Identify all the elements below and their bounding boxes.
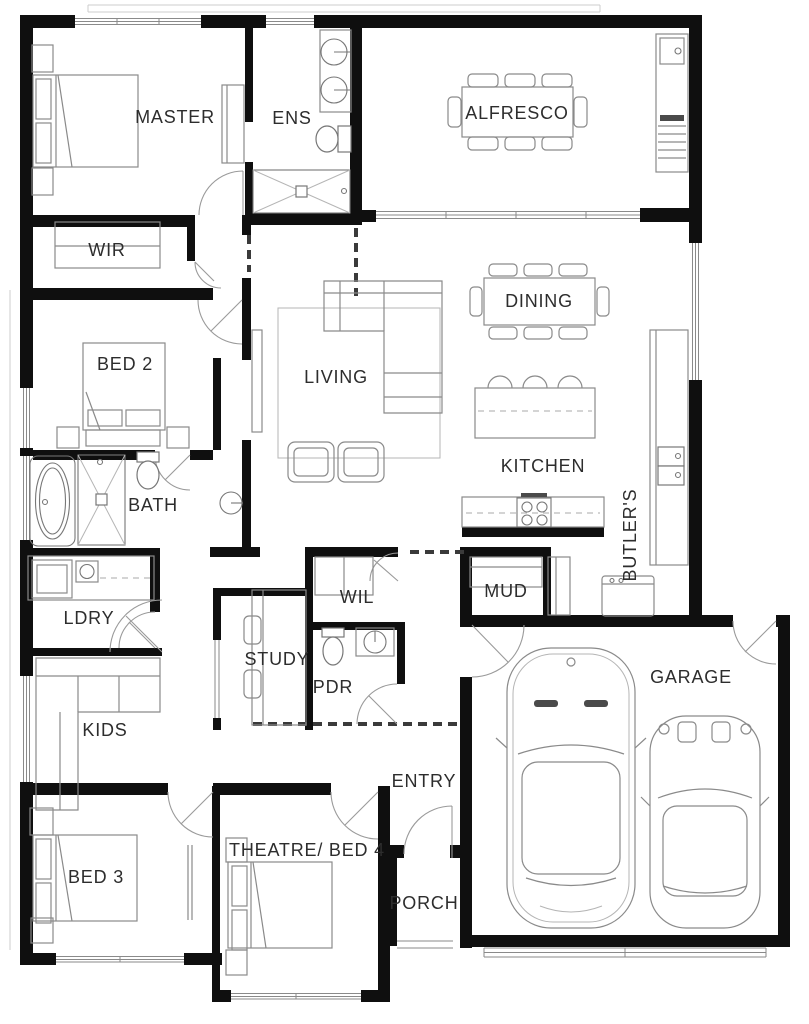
window-theatre-bottom [231,990,361,1002]
room-label-living: LIVING [304,367,368,387]
sliding-door-alfresco [376,208,640,222]
window-kitchen-right [689,243,702,380]
master-robe [222,85,244,163]
living-sofa [324,281,442,413]
ens-toilet [316,126,351,152]
room-label-theatre: THEATRE/ BED 4 [229,840,385,860]
kitchen-bench [462,493,604,527]
door-garage-internal [472,625,524,677]
room-label-wir: WIR [88,240,125,260]
master-bed [32,45,138,195]
garage-door [484,948,766,957]
bath-shower [78,455,125,545]
door-wil [370,553,398,581]
bed3-robe [188,845,192,920]
room-label-dining: DINING [505,291,573,311]
door-wir [195,262,221,288]
garage-car-small [641,716,769,928]
window-master-top [75,15,201,28]
door-laundry [119,612,155,648]
room-label-garage: GARAGE [650,667,732,687]
room-label-mud: MUD [484,581,527,601]
door-bed2 [198,300,242,344]
door-theatre [331,792,378,839]
butlers-cabinet [548,557,570,615]
window-kids-left [20,676,33,782]
door-master [199,171,243,215]
room-label-porch: PORCH [389,893,458,913]
room-label-ldry: LDRY [64,608,115,628]
room-label-ens: ENS [272,108,311,128]
laundry-bench [28,556,154,600]
bath-tub [30,456,75,546]
bath-basin [220,492,243,514]
kitchen-double-oven [658,447,684,485]
eave-lines [10,5,600,950]
room-label-bed2: BED 2 [97,354,153,374]
window-bed3-bottom [56,953,184,965]
room-label-master: MASTER [135,107,215,127]
alfresco-bbq [656,34,688,172]
room-label-bed3: BED 3 [68,867,124,887]
window-study-glazing [213,640,221,718]
floor-plan-canvas: MASTER ENS ALFRESCO WIR BED 2 LIVING DIN… [0,0,809,1024]
kitchen-island [475,376,595,438]
door-pdr [357,684,397,724]
room-label-kitchen: KITCHEN [501,456,586,476]
room-label-entry: ENTRY [392,771,457,791]
room-label-pdr: PDR [313,677,353,697]
door-garage-rear [733,621,776,664]
pdr-basin [356,628,394,656]
window-bath-left [20,456,33,540]
window-ens-top [266,15,314,28]
porch-step [397,941,453,948]
room-label-study: STUDY [244,649,309,669]
garage-car-large [496,648,646,928]
ens-shower [253,170,350,213]
bath-toilet [137,452,159,489]
pdr-toilet [322,628,344,665]
door-bed3 [168,792,213,837]
room-label-kids: KIDS [82,720,127,740]
window-bed2-left [20,388,33,448]
room-label-wil: WIL [340,587,374,607]
floor-plan-drawing: MASTER ENS ALFRESCO WIR BED 2 LIVING DIN… [0,0,809,1024]
door-bath [155,455,190,490]
living-armchairs [288,442,384,482]
living-tv-unit [252,330,262,432]
door-front-entry [404,806,452,858]
room-label-alfresco: ALFRESCO [465,103,568,123]
ens-vanity [320,30,351,112]
room-label-butlers: BUTLER'S [620,489,640,582]
room-label-bath: BATH [128,495,178,515]
doors [110,171,776,858]
